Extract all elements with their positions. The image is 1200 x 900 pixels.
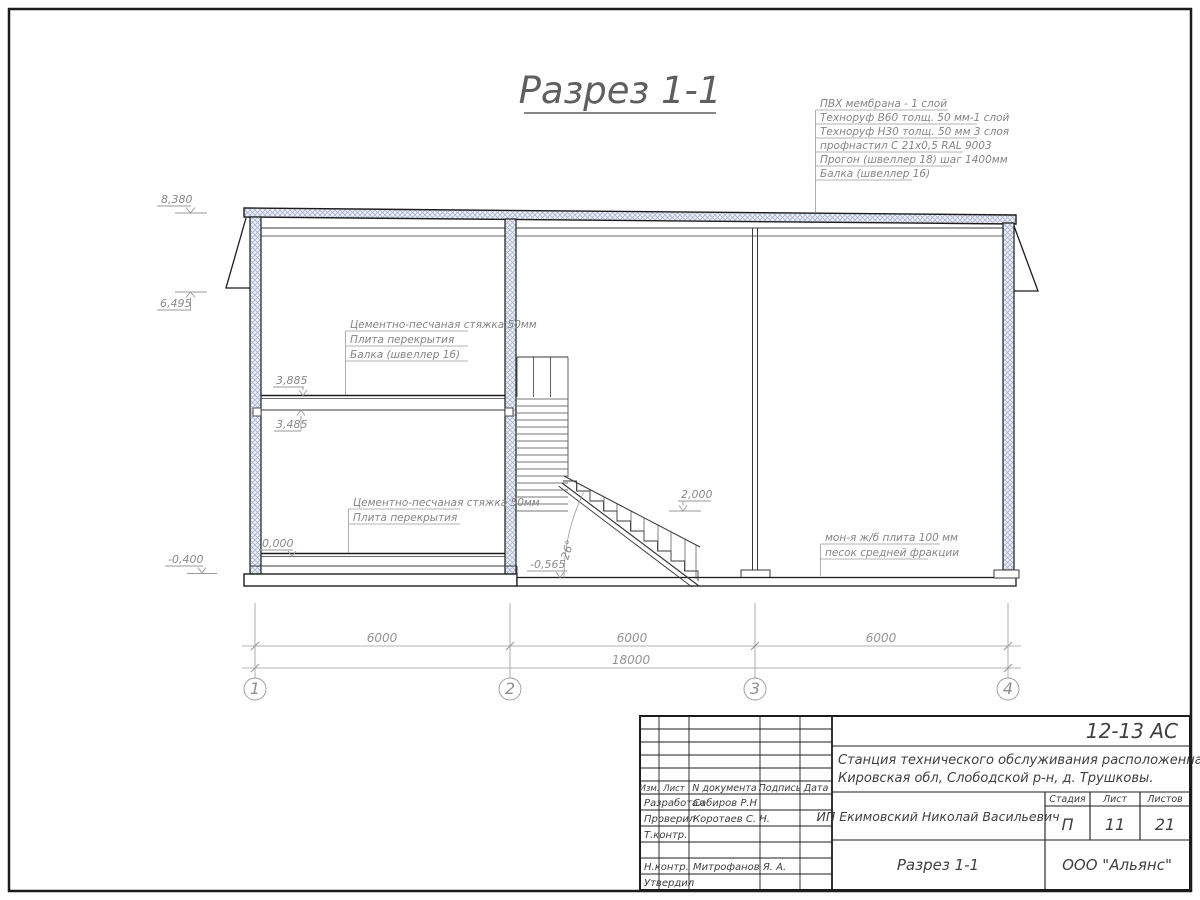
sheet-number: 11 [1105, 815, 1125, 834]
foundation [244, 566, 1019, 586]
building-section: 26° [226, 208, 1038, 587]
project-name-line2: Кировская обл, Слободской р-н, д. Трушко… [838, 771, 1153, 786]
wall-axis-4 [1003, 223, 1014, 570]
document-code: 12-13 АС [1086, 719, 1178, 743]
col-header-izm: Изм. [640, 784, 660, 794]
role-label: Проверил [644, 814, 696, 825]
dim-total: 18000 [612, 653, 651, 667]
note-line: Прогон (швеллер 18) шаг 1400мм [820, 154, 1008, 166]
stage-label: Стадия [1049, 794, 1086, 805]
left-eave [226, 218, 250, 288]
axis-label-1: 1 [250, 679, 260, 698]
axis-bubbles: 1 2 3 4 [244, 678, 1019, 700]
section-drawing-svg: Разрез 1-1 [0, 0, 1200, 900]
note-line: ПВХ мембрана - 1 слой [820, 98, 947, 110]
note-line: Цементно-песчаная стяжка 50мм [353, 497, 540, 509]
elevation-mark-floor2-top [273, 387, 307, 396]
wall-axis-1 [250, 217, 261, 574]
dim-span-1: 6000 [367, 631, 398, 645]
dimension-lines: 6000 6000 6000 18000 [242, 603, 1021, 678]
elevation-value: 6,495 [160, 297, 192, 310]
sheets-total: 21 [1155, 815, 1175, 834]
page-title: Разрез 1-1 [519, 69, 722, 112]
role-label: Т.контр. [644, 830, 687, 841]
col-header-list: Лист [662, 784, 686, 794]
dim-span-2: 6000 [617, 631, 648, 645]
note-line: Балка (швеллер 16) [820, 168, 930, 180]
title-block-header-row: Изм. Лист N документа Подпись Дата [640, 783, 829, 794]
elevation-mark-pit [527, 571, 567, 578]
elevation-value: 2,000 [681, 488, 713, 501]
stair-flight: 26° [558, 476, 700, 587]
elevation-value: -0,400 [168, 553, 203, 566]
dim-span-3: 6000 [866, 631, 897, 645]
stair-steps [563, 481, 698, 581]
col-header-doc: N документа [692, 783, 757, 794]
column-axis-3 [741, 228, 770, 578]
stage-value: П [1061, 815, 1073, 834]
elevation-mark-roof [157, 206, 207, 213]
right-eave [1011, 226, 1038, 291]
elevation-value: 0,000 [262, 537, 294, 550]
role-name: Митрофанов Я. А. [693, 862, 786, 873]
wall-axis-2 [505, 219, 516, 577]
elevation-value: 3,885 [276, 374, 308, 387]
roof-layers-note: ПВХ мембрана - 1 слой Техноруф В60 толщ.… [816, 98, 1010, 212]
roof-slab [244, 208, 1016, 224]
role-label: Н.контр. [644, 862, 689, 873]
note-line: Плита перекрытия [353, 512, 457, 524]
col-header-sign: Подпись [759, 783, 802, 794]
note-line: Техноруф Н30 толщ. 50 мм 3 слоя [820, 126, 1009, 138]
role-label: Утвердил [644, 878, 695, 889]
note-line: профнастил С 21х0,5 RAL 9003 [820, 140, 992, 152]
axis-label-4: 4 [1003, 679, 1013, 698]
elevation-mark-landing [669, 501, 711, 511]
note-line: песок средней фракции [825, 547, 959, 559]
elevation-value: 8,380 [161, 193, 193, 206]
note-line: Цементно-песчаная стяжка 50мм [350, 319, 537, 331]
note-line: Техноруф В60 толщ. 50 мм-1 слой [820, 112, 1010, 124]
ground-slab-note: мон-я ж/б плита 100 мм песок средней фра… [821, 532, 960, 576]
axis-label-3: 3 [750, 679, 760, 698]
stair-treads [517, 399, 568, 511]
note-line: мон-я ж/б плита 100 мм [825, 532, 958, 544]
floor1-slab [250, 554, 516, 567]
floor2-slab [253, 396, 513, 417]
elevation-value: 3,485 [276, 418, 308, 431]
client-name: ИП Екимовский Николай Васильевич [816, 809, 1059, 824]
note-line: Плита перекрытия [350, 334, 454, 346]
drawing-title: Разрез 1-1 [519, 69, 722, 113]
sheets-label: Листов [1146, 794, 1183, 805]
project-name-line1: Станция технического обслуживания распол… [838, 753, 1200, 768]
note-line: Балка (швеллер 16) [350, 349, 460, 361]
drawing-name: Разрез 1-1 [897, 856, 979, 874]
col-header-date: Дата [803, 783, 829, 794]
role-name: Сабиров Р.Н [693, 797, 758, 809]
elevation-value: -0,565 [530, 558, 565, 571]
title-block: Изм. Лист N документа Подпись Дата Разра… [640, 716, 1200, 890]
stair-angle-arc [564, 493, 584, 578]
axis-label-2: 2 [505, 679, 515, 698]
elevation-mark-base [165, 566, 217, 574]
sheet-label: Лист [1102, 794, 1128, 805]
company-name: ООО "Альянс" [1062, 856, 1172, 874]
drawing-sheet: Разрез 1-1 [0, 0, 1200, 900]
role-name: Коротаев С. Н. [693, 814, 770, 825]
